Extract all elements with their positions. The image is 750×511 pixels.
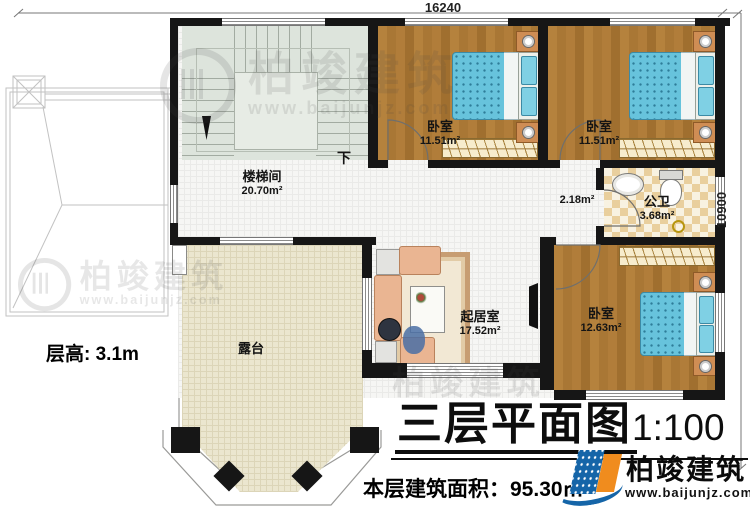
scale-label: 1:100 — [632, 409, 725, 446]
dimension-width: 16240 — [408, 0, 478, 15]
floor-area-note: 本层建筑面积：95.30㎡ — [363, 473, 584, 503]
brand-logo: 柏竣建筑 www.baijunjz.com、 — [556, 444, 750, 506]
stair-down-label: 下 — [337, 150, 351, 166]
room-label-bedroom3: 卧室12.63m² — [581, 307, 622, 335]
room-label-bathroom: 公卫3.68m² — [640, 195, 675, 223]
room-label-terrace: 露台 — [238, 342, 264, 357]
page-title: 三层平面图 — [397, 401, 632, 446]
floor-height-note: 层高: 3.1m — [46, 339, 139, 366]
room-label-bedroom1: 卧室11.51m² — [420, 120, 460, 148]
dimension-height: 10900 — [714, 179, 729, 241]
brand-logo-icon — [556, 444, 624, 506]
room-label-stairwell: 楼梯间20.70m² — [242, 170, 283, 198]
floorplan-page: { "dims": { "width": "16240", "height": … — [0, 0, 750, 511]
room-label-living: 起居室17.52m² — [460, 310, 501, 338]
room-label-hall-nook: 2.18m² — [560, 194, 595, 207]
brand-website: www.baijunjz.com、 — [625, 482, 750, 501]
room-label-bedroom2: 卧室11.51m² — [579, 120, 619, 148]
